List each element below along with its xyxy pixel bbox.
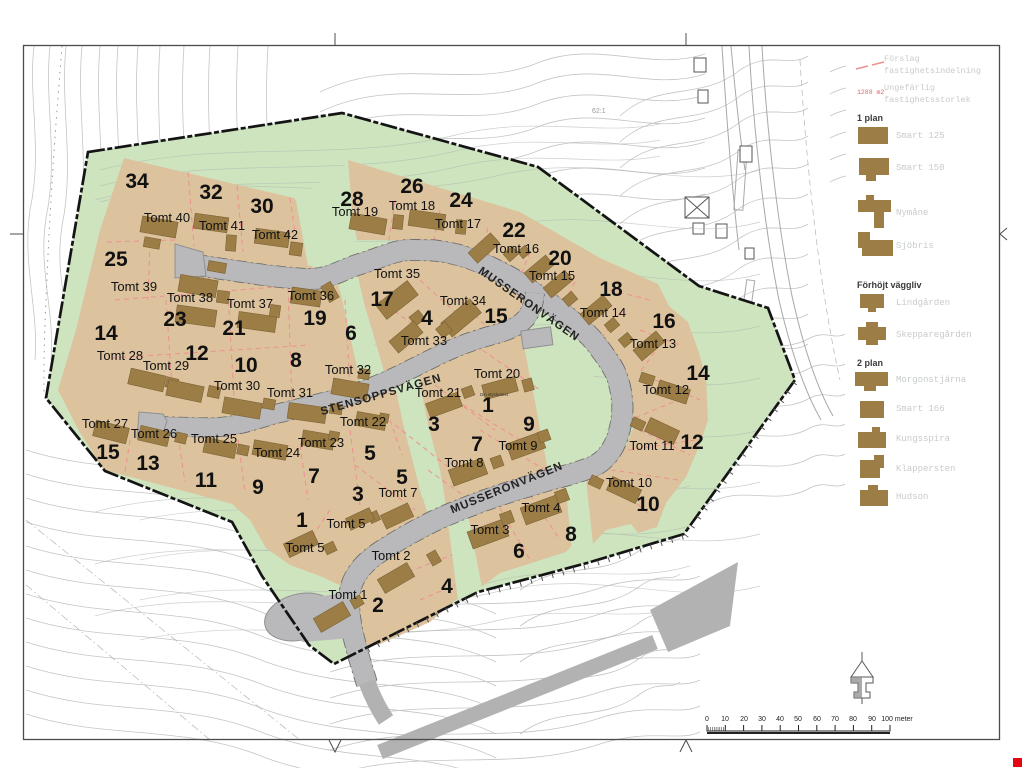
svg-text:Sjöbris: Sjöbris [896, 241, 934, 251]
svg-text:Tomt 12: Tomt 12 [643, 382, 689, 397]
svg-text:Lindgården: Lindgården [896, 298, 950, 308]
svg-text:Tomt 30: Tomt 30 [214, 378, 260, 393]
svg-text:30: 30 [758, 716, 766, 723]
svg-text:Tomt 8: Tomt 8 [444, 455, 483, 470]
svg-text:13: 13 [136, 452, 159, 475]
svg-text:Smart 150: Smart 150 [896, 163, 945, 173]
svg-text:4: 4 [421, 307, 433, 330]
svg-text:Skepparegården: Skepparegården [896, 330, 972, 340]
svg-text:Tomt 10: Tomt 10 [606, 475, 652, 490]
svg-text:Din stycketext: Din stycketext [480, 392, 509, 397]
svg-text:Tomt 27: Tomt 27 [82, 416, 128, 431]
svg-text:6: 6 [345, 322, 357, 345]
svg-text:Tomt 7: Tomt 7 [378, 485, 417, 500]
svg-text:34: 34 [125, 170, 149, 193]
svg-text:16: 16 [652, 310, 675, 333]
svg-text:Tomt 36: Tomt 36 [288, 288, 334, 303]
svg-text:Tomt 40: Tomt 40 [144, 210, 190, 225]
svg-text:10: 10 [721, 716, 729, 723]
svg-text:17: 17 [370, 288, 393, 311]
svg-text:Tomt 25: Tomt 25 [191, 431, 237, 446]
svg-text:7: 7 [308, 465, 320, 488]
svg-text:Tomt 31: Tomt 31 [267, 385, 313, 400]
svg-text:Tomt 1: Tomt 1 [328, 587, 367, 602]
svg-text:15: 15 [96, 441, 120, 464]
svg-text:Hudson: Hudson [896, 492, 928, 502]
svg-text:Smart 125: Smart 125 [896, 131, 945, 141]
svg-text:9: 9 [523, 413, 535, 436]
svg-text:Tomt 5: Tomt 5 [285, 540, 324, 555]
svg-text:14: 14 [94, 322, 118, 345]
svg-text:Tomt 41: Tomt 41 [199, 218, 245, 233]
svg-text:Tomt 39: Tomt 39 [111, 279, 157, 294]
svg-text:Nymåne: Nymåne [896, 208, 928, 218]
svg-text:Förslag: Förslag [884, 54, 920, 64]
svg-text:Tomt 19: Tomt 19 [332, 204, 378, 219]
svg-text:6: 6 [513, 540, 525, 563]
svg-text:62:1: 62:1 [592, 108, 606, 115]
svg-text:11: 11 [195, 469, 218, 492]
svg-text:8: 8 [290, 349, 302, 372]
svg-text:20: 20 [548, 247, 571, 270]
svg-text:Tomt 3: Tomt 3 [470, 522, 509, 537]
svg-text:90: 90 [868, 716, 876, 723]
svg-text:22: 22 [502, 219, 525, 242]
svg-text:Tomt 5: Tomt 5 [326, 516, 365, 531]
svg-text:Tomt 15: Tomt 15 [529, 268, 575, 283]
svg-text:2 plan: 2 plan [857, 358, 883, 368]
svg-text:Tomt 17: Tomt 17 [435, 216, 481, 231]
svg-text:Tomt 26: Tomt 26 [131, 426, 177, 441]
svg-text:Tomt 33: Tomt 33 [401, 333, 447, 348]
svg-text:21: 21 [222, 317, 246, 340]
svg-text:1: 1 [482, 394, 494, 417]
svg-text:14: 14 [686, 362, 710, 385]
svg-text:10: 10 [636, 493, 659, 516]
svg-text:19: 19 [303, 307, 326, 330]
svg-text:24: 24 [449, 189, 473, 212]
svg-text:1: 1 [296, 509, 308, 532]
svg-text:4: 4 [441, 575, 453, 598]
svg-text:Tomt 35: Tomt 35 [374, 266, 420, 281]
svg-text:23: 23 [163, 308, 186, 331]
svg-text:Tomt 28: Tomt 28 [97, 348, 143, 363]
svg-text:fastighetsindelning: fastighetsindelning [884, 66, 981, 76]
svg-text:Tomt 20: Tomt 20 [474, 366, 520, 381]
svg-text:1 plan: 1 plan [857, 113, 883, 123]
svg-text:Tomt 22: Tomt 22 [340, 414, 386, 429]
svg-text:5: 5 [364, 442, 376, 465]
svg-text:18: 18 [599, 278, 623, 301]
svg-text:9: 9 [252, 476, 264, 499]
svg-text:32: 32 [199, 181, 222, 204]
svg-text:20: 20 [740, 716, 748, 723]
svg-text:Tomt 24: Tomt 24 [254, 445, 300, 460]
svg-text:Klappersten: Klappersten [896, 464, 955, 474]
svg-text:Tomt 38: Tomt 38 [167, 290, 213, 305]
svg-text:Kungsspira: Kungsspira [896, 434, 951, 444]
svg-text:1288 m2: 1288 m2 [857, 89, 884, 96]
svg-text:7: 7 [471, 433, 483, 456]
svg-text:50: 50 [794, 716, 802, 723]
svg-text:Tomt 13: Tomt 13 [630, 336, 676, 351]
svg-text:Tomt 29: Tomt 29 [143, 358, 189, 373]
svg-text:Tomt 14: Tomt 14 [580, 305, 626, 320]
svg-text:Förhöjt väggliv: Förhöjt väggliv [857, 280, 922, 290]
svg-text:8: 8 [565, 523, 577, 546]
svg-text:100 meter: 100 meter [881, 716, 913, 723]
svg-text:Tomt 2: Tomt 2 [371, 548, 410, 563]
svg-text:Ungefärlig: Ungefärlig [884, 83, 935, 93]
svg-text:Tomt 11: Tomt 11 [629, 438, 674, 453]
svg-text:25: 25 [104, 248, 128, 271]
svg-text:15: 15 [484, 305, 508, 328]
svg-text:10: 10 [234, 354, 257, 377]
svg-text:80: 80 [849, 716, 857, 723]
svg-text:Tomt 34: Tomt 34 [440, 293, 486, 308]
svg-text:0: 0 [705, 716, 709, 723]
svg-text:26: 26 [400, 175, 423, 198]
svg-text:Tomt 37: Tomt 37 [227, 296, 273, 311]
svg-text:fastighetsstorlek: fastighetsstorlek [884, 95, 971, 105]
svg-text:3: 3 [352, 483, 364, 506]
svg-text:30: 30 [250, 195, 273, 218]
svg-text:70: 70 [831, 716, 839, 723]
svg-text:Tomt 23: Tomt 23 [298, 435, 344, 450]
svg-text:Smart 166: Smart 166 [896, 404, 945, 414]
svg-text:12: 12 [680, 431, 703, 454]
svg-text:Morgonstjärna: Morgonstjärna [896, 375, 967, 385]
svg-text:Tomt 32: Tomt 32 [325, 362, 371, 377]
svg-text:40: 40 [776, 716, 784, 723]
svg-text:Tomt 4: Tomt 4 [521, 500, 560, 515]
svg-text:Tomt 18: Tomt 18 [389, 198, 435, 213]
svg-text:60: 60 [813, 716, 821, 723]
svg-text:2: 2 [372, 594, 384, 617]
svg-text:3: 3 [428, 413, 440, 436]
svg-text:Tomt 16: Tomt 16 [493, 241, 539, 256]
svg-text:Tomt 42: Tomt 42 [252, 227, 298, 242]
svg-text:Tomt 9: Tomt 9 [498, 438, 537, 453]
